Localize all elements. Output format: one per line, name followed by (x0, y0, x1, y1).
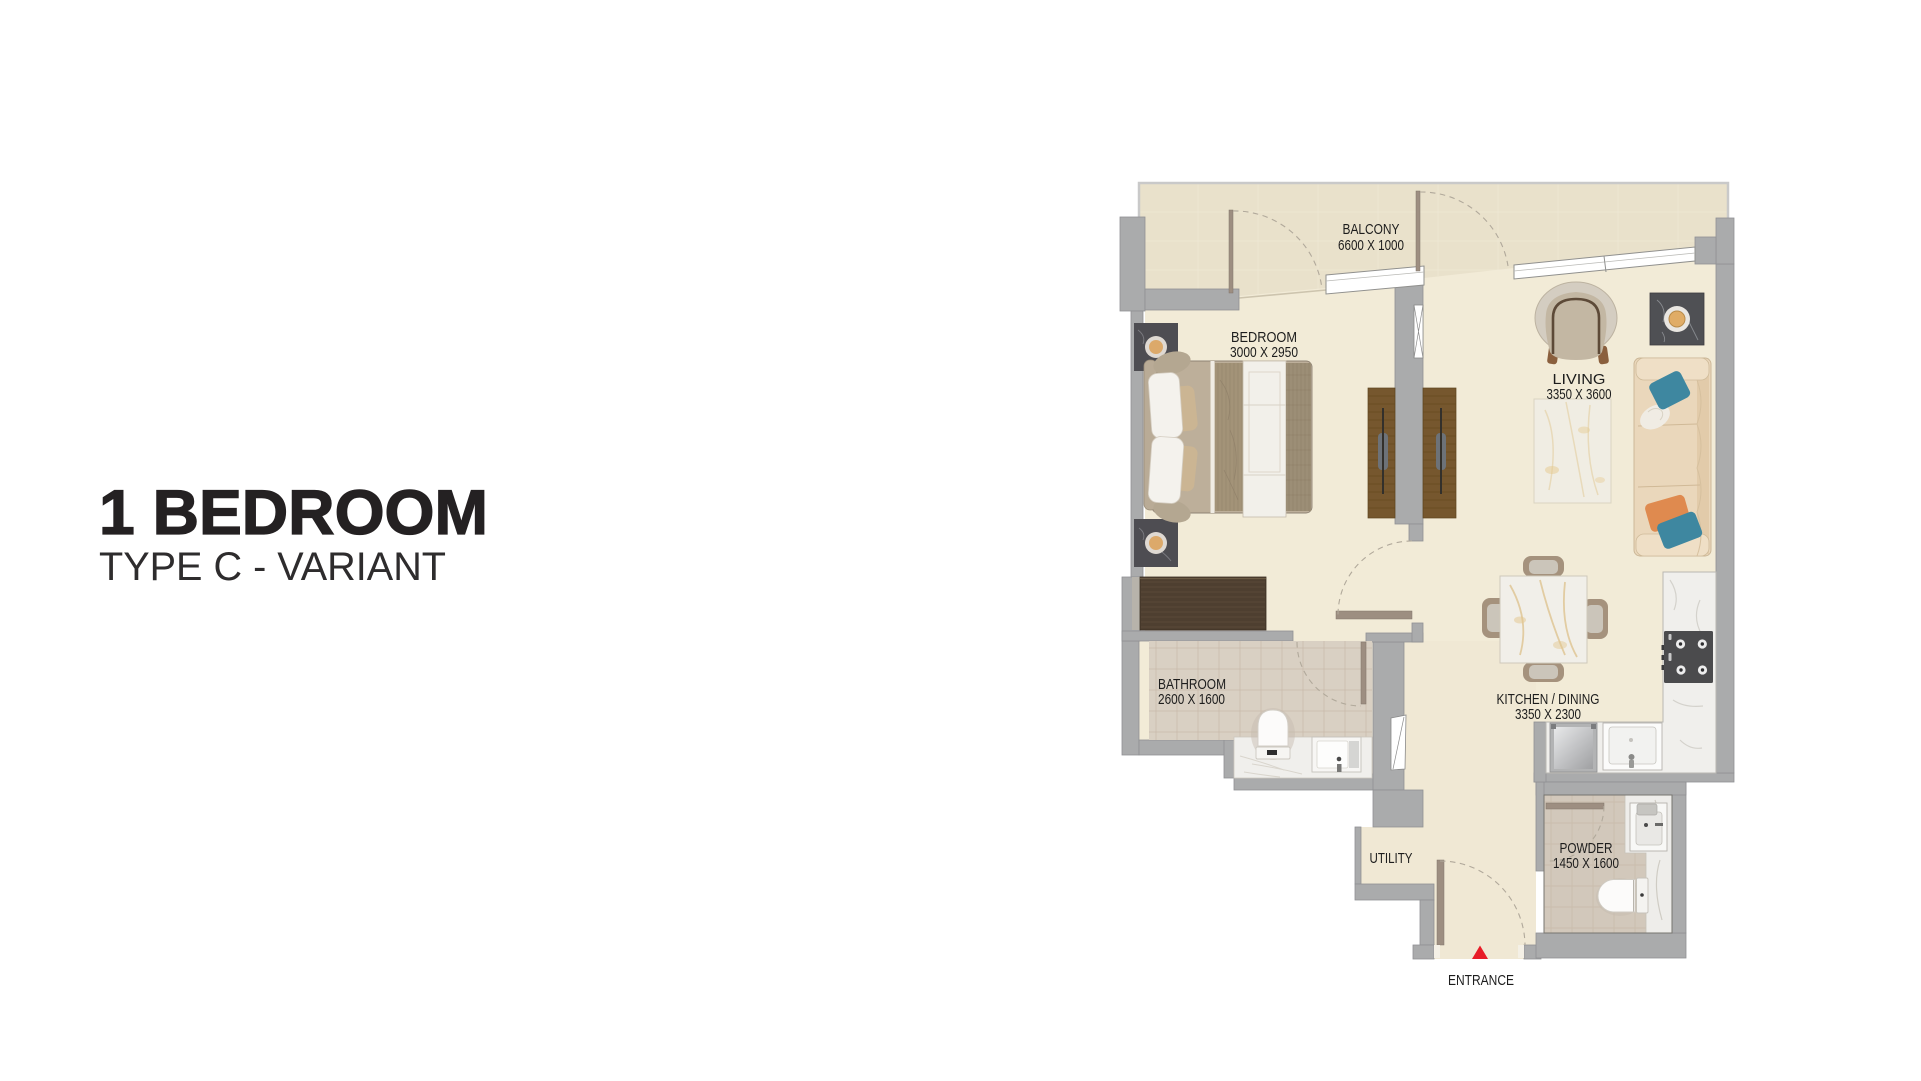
svg-text:UTILITY: UTILITY (1370, 850, 1413, 867)
svg-text:6600 X 1000: 6600 X 1000 (1338, 237, 1404, 254)
svg-text:BALCONY: BALCONY (1343, 221, 1400, 238)
svg-text:1450 X 1600: 1450 X 1600 (1553, 855, 1619, 872)
svg-text:3000 X 2950: 3000 X 2950 (1230, 344, 1298, 361)
svg-text:ENTRANCE: ENTRANCE (1448, 972, 1514, 989)
svg-text:TYPE C - VARIANT: TYPE C - VARIANT (99, 545, 446, 589)
svg-text:3350 X 3600: 3350 X 3600 (1547, 386, 1612, 403)
svg-text:3350 X 2300: 3350 X 2300 (1515, 706, 1581, 723)
svg-text:1 BEDROOM: 1 BEDROOM (99, 478, 488, 548)
svg-text:2600 X 1600: 2600 X 1600 (1158, 691, 1225, 708)
